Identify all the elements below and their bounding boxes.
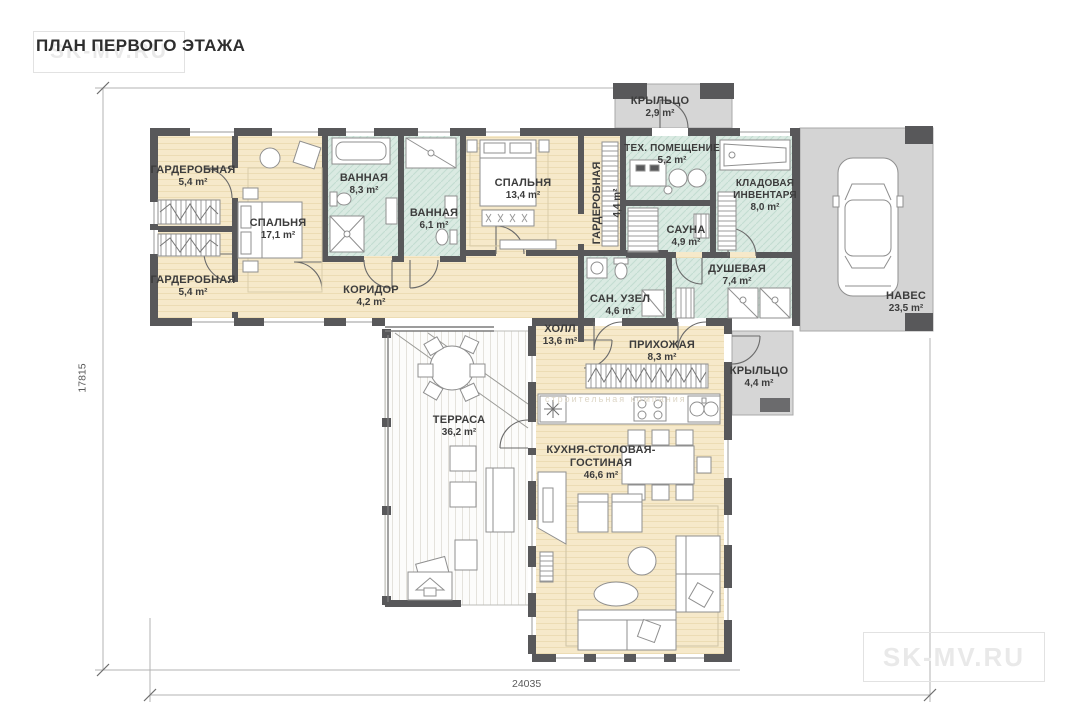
page-title: ПЛАН ПЕРВОГО ЭТАЖА [36,36,245,56]
room-label-hall: ХОЛЛ 13,6 m² [543,323,577,348]
dimension-height: 17815 [77,363,89,392]
dimension-width: 24035 [512,678,541,690]
floor-plan-page: SK-MV.RU SK-MV.RU строительная компания … [0,0,1080,720]
room-label-bedroom2: СПАЛЬНЯ 13,4 m² [495,177,552,202]
floor-plan-canvas [0,0,1080,720]
dresser-icon [500,240,556,249]
pouf-icon [260,148,280,168]
room-label-bath2: ВАННАЯ 6,1 m² [410,207,458,232]
watermark-bottom: SK-MV.RU [863,632,1045,682]
room-label-bath1: ВАННАЯ 8,3 m² [340,172,388,197]
room-label-sauna: САУНА 4,9 m² [667,224,706,249]
room-label-porch-top: КРЫЛЬЦО 2,9 m² [631,95,689,120]
room-label-bedroom1: СПАЛЬНЯ 17,1 m² [250,217,307,242]
sink-cabinet-icon [386,198,397,224]
room-label-carport: НАВЕС 23,5 m² [886,290,926,315]
shower-icon [406,138,456,168]
room-label-tech: ТЕХ. ПОМЕЩЕНИЕ 5,2 m² [624,143,720,167]
shower-icon [330,216,364,252]
room-label-wardrobe1: ГАРДЕРОБНАЯ 5,4 m² [151,164,236,189]
watermark-center: строительная компания [545,394,687,404]
watermark-text: SK-MV.RU [883,642,1025,673]
room-label-wardrobe2: ГАРДЕРОБНАЯ 5,4 m² [151,274,236,299]
bathtub-icon [332,138,390,164]
room-label-wardrobe3: ГАРДЕРОБНАЯ 4,4 m² [586,133,626,273]
room-label-shower: ДУШЕВАЯ 7,4 m² [708,263,766,288]
coffee-table-icon [628,547,656,575]
room-label-entry: ПРИХОЖАЯ 8,3 m² [629,339,695,364]
room-label-storage: КЛАДОВАЯ ИНВЕНТАРЯ 8,0 m² [730,178,800,213]
terrace-step-icon [408,572,452,600]
car-icon [833,158,903,296]
room-label-kitchen: КУХНЯ-СТОЛОВАЯ-ГОСТИНАЯ 46,6 m² [543,444,659,482]
shower-stall-icon [676,288,790,318]
room-label-corridor: КОРИДОР 4,2 m² [343,284,399,309]
entry-wardrobe-icon [586,364,708,388]
oval-table-icon [594,582,638,606]
room-label-wc: САН. УЗЕЛ 4,6 m² [590,293,650,318]
room-label-porch-right: КРЫЛЬЦО 4,4 m² [730,365,788,390]
room-label-terrace: ТЕРРАСА 36,2 m² [433,414,485,439]
bathtub-icon [720,140,790,170]
